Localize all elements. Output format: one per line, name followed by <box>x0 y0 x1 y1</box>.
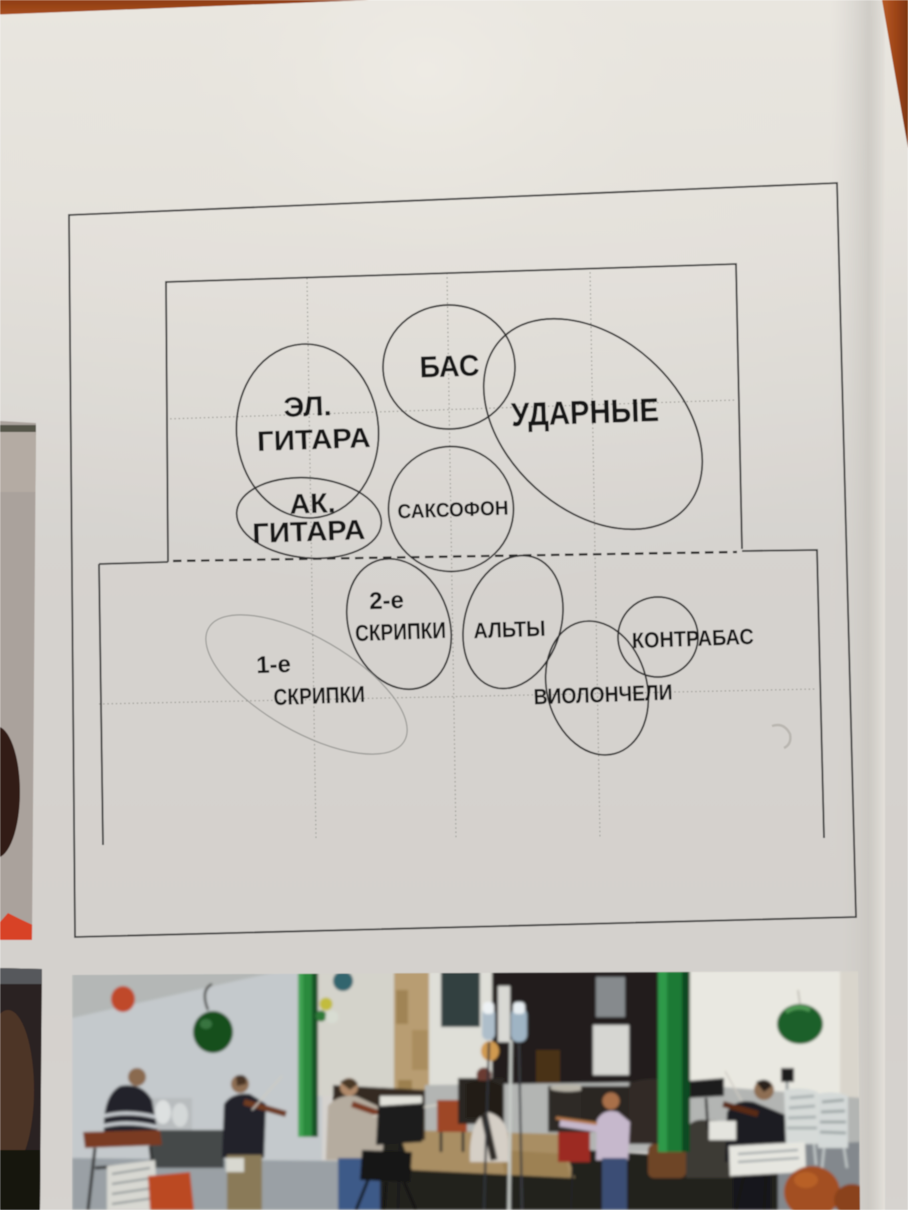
svg-text:КОНТРАБАС: КОНТРАБАС <box>631 624 754 653</box>
svg-text:2-е: 2-е <box>369 587 405 615</box>
svg-text:ВИОЛОНЧЕЛИ: ВИОЛОНЧЕЛИ <box>533 680 673 710</box>
svg-text:ГИТАРА: ГИТАРА <box>257 422 372 457</box>
svg-text:БАС: БАС <box>419 349 480 384</box>
svg-text:УДАРНЫЕ: УДАРНЫЕ <box>510 391 659 433</box>
svg-text:САКСОФОН: САКСОФОН <box>397 498 509 524</box>
svg-text:СКРИПКИ: СКРИПКИ <box>273 681 365 710</box>
svg-text:АЛЬТЫ: АЛЬТЫ <box>473 616 546 643</box>
svg-text:ЭЛ.: ЭЛ. <box>283 390 332 423</box>
svg-text:1-е: 1-е <box>256 651 292 679</box>
svg-text:ГИТАРА: ГИТАРА <box>252 514 366 549</box>
svg-text:СКРИПКИ: СКРИПКИ <box>355 617 447 646</box>
